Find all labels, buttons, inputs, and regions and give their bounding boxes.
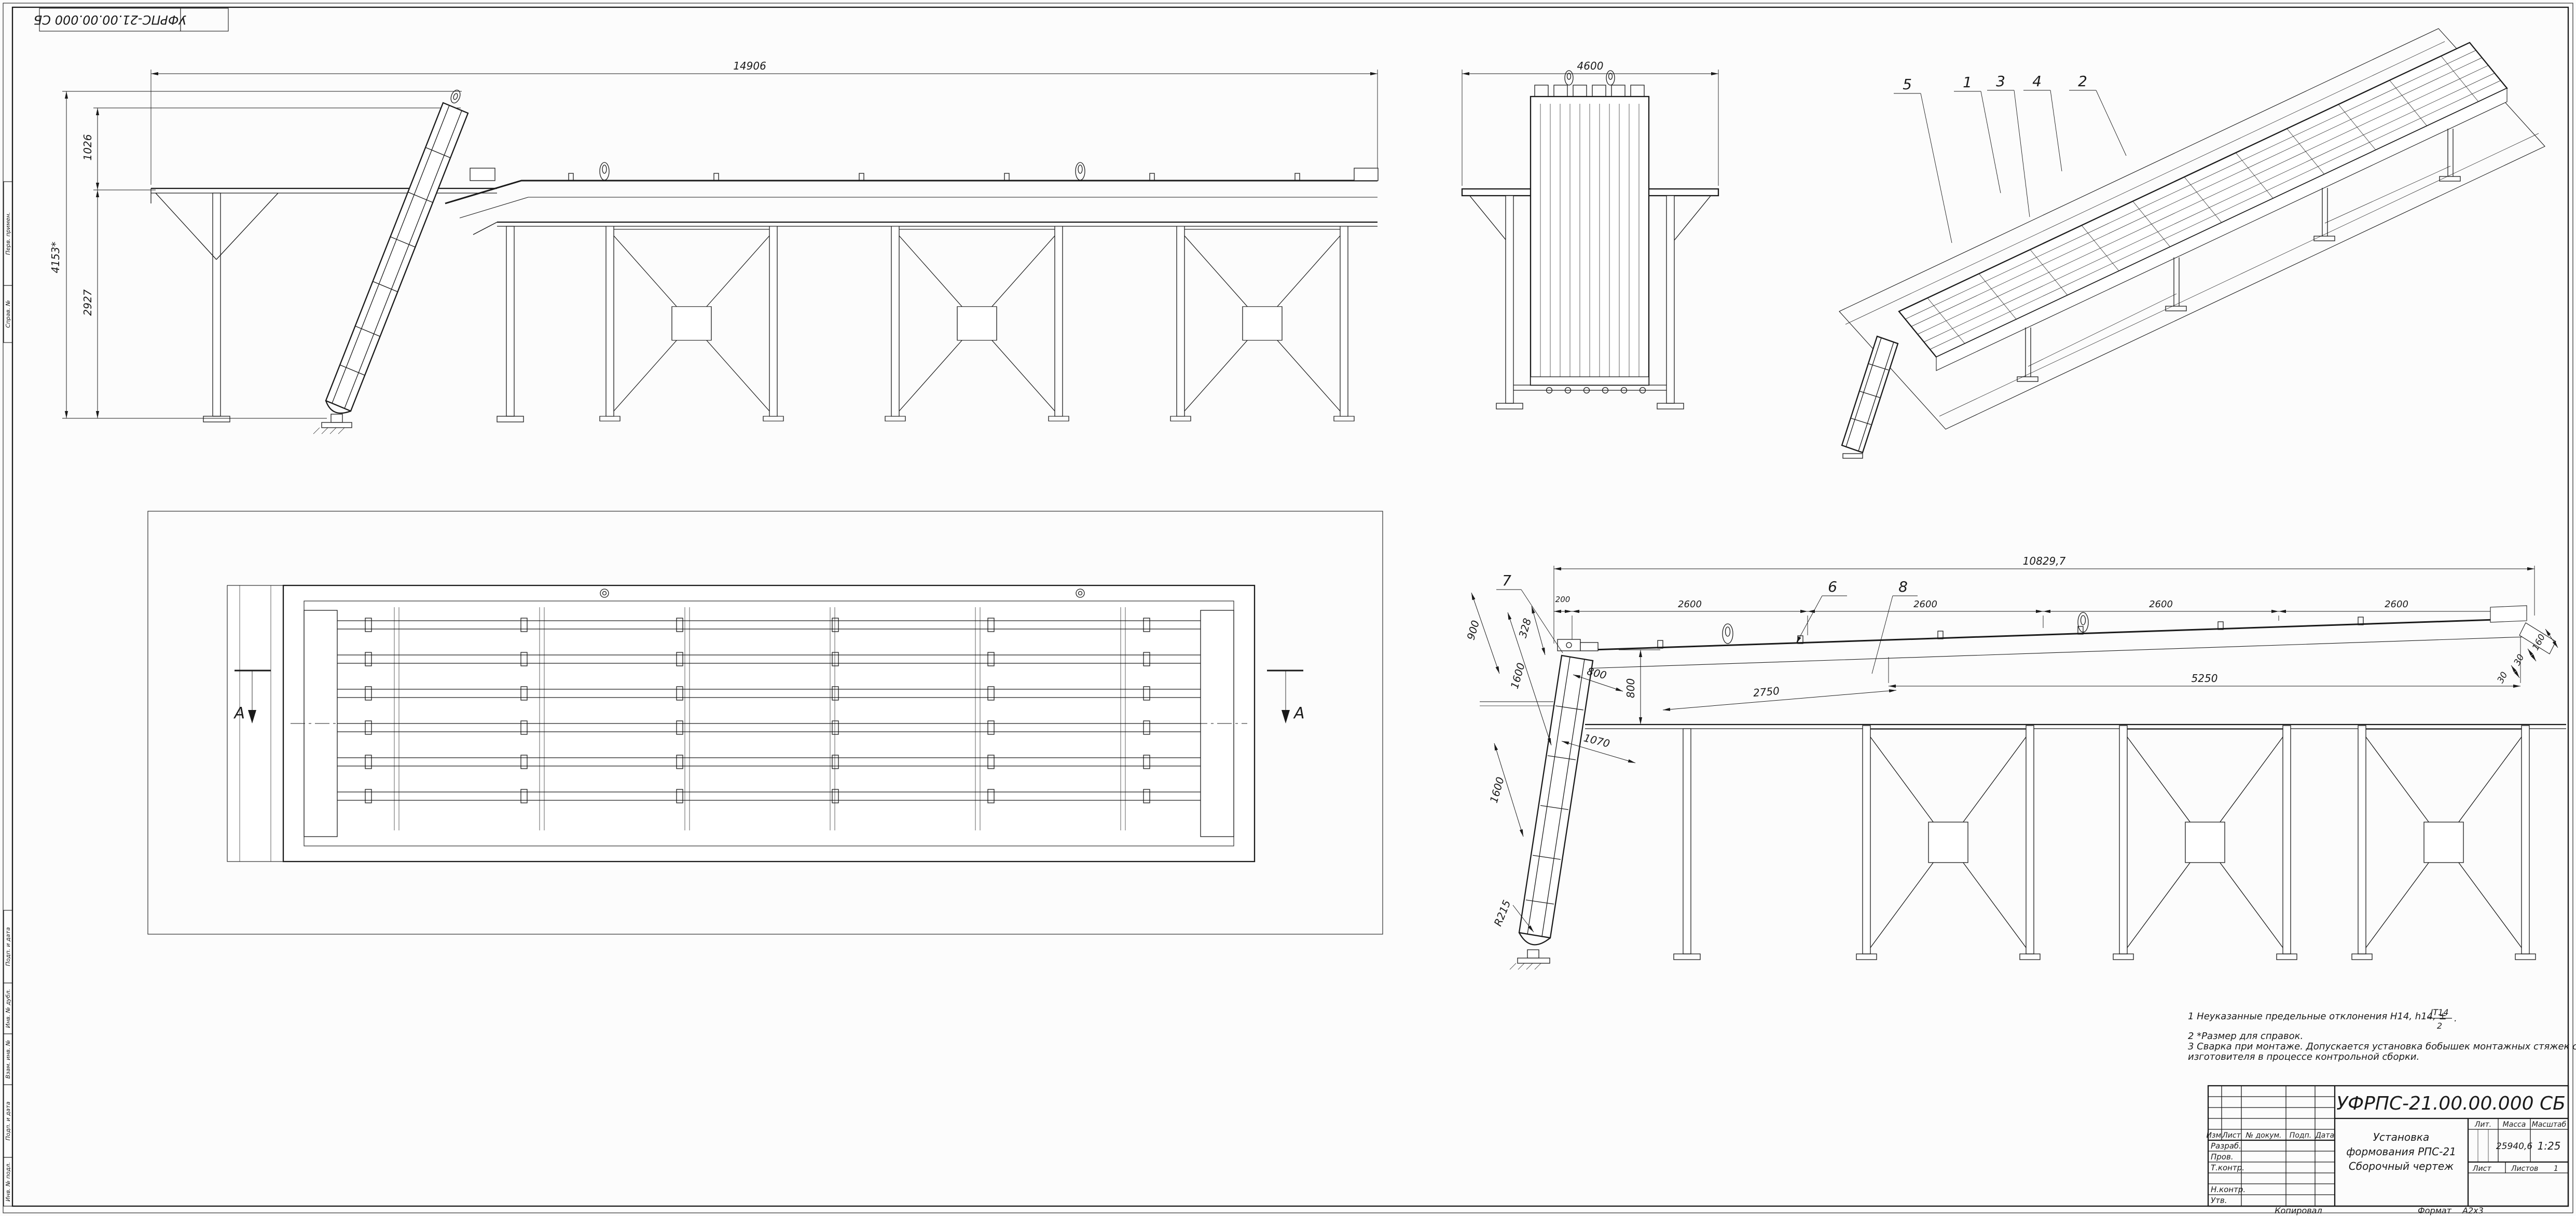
tb-row-utv: Утв. (2211, 1196, 2227, 1205)
note-1: 1 Неуказанные предельные отклонения Н14,… (2188, 1011, 2447, 1022)
tb-row-tkontr: Т.контр. (2211, 1163, 2244, 1172)
dim-328: 328 (1516, 617, 1534, 639)
tb-format-label: Формат (2418, 1206, 2452, 1215)
stamp-inv-dubl: Инв. № дубл. (5, 989, 11, 1028)
view-plan: А А (148, 511, 1383, 934)
callout-4: 4 (2032, 73, 2042, 90)
callout-7: 7 (1502, 572, 1511, 589)
callout-2: 2 (2078, 73, 2087, 90)
note-1-frac-num: IT14 (2431, 1007, 2449, 1017)
tb-format-value: А2х3 (2462, 1206, 2484, 1215)
dim-5250: 5250 (2192, 672, 2218, 685)
drawing-sheet: УФРПС-21.00.00.000 СБ Перв. примен. Спра… (0, 0, 2576, 1216)
left-margin-stamps: Перв. примен. Справ. № Подп. и дата Инв.… (4, 182, 12, 1206)
side-inclined-elevator (313, 89, 468, 434)
tb-doc-number: УФРПС-21.00.00.000 СБ (2336, 1093, 2566, 1114)
tb-name-line-3: Сборочный чертеж (2349, 1160, 2454, 1172)
callout-5: 5 (1903, 76, 1912, 93)
view-end-elevation: 4600 (1462, 60, 1718, 409)
tb-col-podp: Подп. (2290, 1131, 2311, 1140)
tb-mass-label: Масса (2503, 1121, 2526, 1129)
iso-callouts: 5 1 3 4 2 (1894, 73, 2126, 243)
tb-col-data: Дата (2315, 1131, 2334, 1140)
dim-30-b: 30 (2512, 652, 2527, 667)
dim-800-vert: 800 (1624, 678, 1637, 698)
note-3-line-1: 3 Сварка при монтаже. Допускается устано… (2188, 1041, 2576, 1052)
dim-1600-a: 1600 (1508, 661, 1527, 690)
dim-side-height-lower: 2927 (81, 289, 94, 316)
section-label-left: А (233, 704, 245, 722)
view-side-elevation: 14906 4153* 1026 2927 (49, 60, 1378, 434)
dim-seg-2600-2: 2600 (1913, 599, 1937, 610)
dim-side-overall: 14906 (733, 60, 766, 72)
stamp-perv-primen: Перв. примен. (5, 212, 11, 255)
callout-6: 6 (1828, 578, 1837, 595)
tb-sheets-value: 1 (2554, 1165, 2558, 1173)
dim-2750: 2750 (1753, 685, 1780, 699)
engineering-drawing: УФРПС-21.00.00.000 СБ Перв. примен. Спра… (0, 0, 2576, 1216)
tb-sheet-label: Лист (2472, 1165, 2491, 1173)
section-label-right: А (1293, 704, 1305, 722)
tb-lit-label: Лит. (2474, 1121, 2491, 1129)
dim-seg-2600-1: 2600 (1678, 599, 1702, 610)
note-3-line-2: изготовителя в процессе контрольной сбор… (2188, 1051, 2419, 1062)
title-block: Изм. Лист № докум. Подп. Дата Разраб. Пр… (2207, 1086, 2568, 1215)
callout-8: 8 (1898, 578, 1908, 595)
stamp-vzam-inv: Взам. инв. № (5, 1040, 11, 1079)
dim-1070: 1070 (1582, 731, 1611, 750)
dim-900: 900 (1464, 619, 1482, 641)
tb-scale-label: Масштаб (2532, 1121, 2567, 1129)
tb-copied-by: Копировал (2275, 1206, 2322, 1215)
dim-r215: R215 (1492, 898, 1513, 928)
technical-notes: 1 Неуказанные предельные отклонения Н14,… (2188, 1007, 2576, 1062)
tb-row-razrab: Разраб. (2211, 1141, 2241, 1151)
view-detail-side: 10829,7 200 2600 2600 2600 2600 (1464, 555, 2566, 969)
note-1-frac-den: 2 (2437, 1021, 2442, 1031)
dim-side-height-upper: 1026 (81, 134, 94, 161)
callout-3: 3 (1996, 73, 2005, 90)
dim-1600-b: 1600 (1487, 775, 1507, 804)
tb-mass-value: 25940,6 (2496, 1141, 2532, 1152)
dim-seg-200: 200 (1555, 595, 1571, 604)
dim-seg-2600-3: 2600 (2149, 599, 2173, 610)
stamp-sprav-no: Справ. № (5, 300, 11, 328)
detail-inclined-elevator (1510, 639, 1598, 969)
detail-callouts: 7 6 8 (1496, 572, 1918, 674)
section-marker-right: А (1267, 671, 1305, 723)
dim-30-a: 30 (2496, 670, 2510, 685)
tb-col-doc: № докум. (2245, 1131, 2281, 1140)
callout-1: 1 (1963, 74, 1972, 91)
tb-row-prov: Пров. (2211, 1152, 2234, 1162)
tb-name-line-2: формования РПС-21 (2346, 1145, 2456, 1158)
corner-doc-number: УФРПС-21.00.00.000 СБ (34, 12, 186, 27)
tb-col-izm: Изм. (2207, 1131, 2224, 1140)
view-isometric: 5 1 3 4 2 (1839, 29, 2545, 458)
stamp-podp-data-2: Подп. и дата (5, 1101, 11, 1140)
note-1-end: . (2454, 1013, 2457, 1024)
tb-scale-value: 1:25 (2538, 1140, 2561, 1152)
stamp-inv-podl: Инв. № подл. (5, 1162, 11, 1201)
tb-row-nkontr: Н.контр. (2211, 1185, 2246, 1194)
iso-inclined-elevator (1842, 336, 1898, 458)
dim-side-height-total: 4153* (49, 242, 62, 274)
dim-seg-2600-4: 2600 (2385, 599, 2408, 610)
dim-front-width: 4600 (1577, 60, 1604, 72)
tb-sheets-label: Листов (2511, 1165, 2538, 1173)
stamp-podp-data-1: Подп. и дата (5, 927, 11, 966)
tb-name-line-1: Установка (2373, 1131, 2430, 1143)
tb-col-list: Лист (2222, 1131, 2241, 1140)
dim-detail-overall: 10829,7 (2023, 555, 2066, 567)
note-2: 2 *Размер для справок. (2188, 1031, 2303, 1042)
